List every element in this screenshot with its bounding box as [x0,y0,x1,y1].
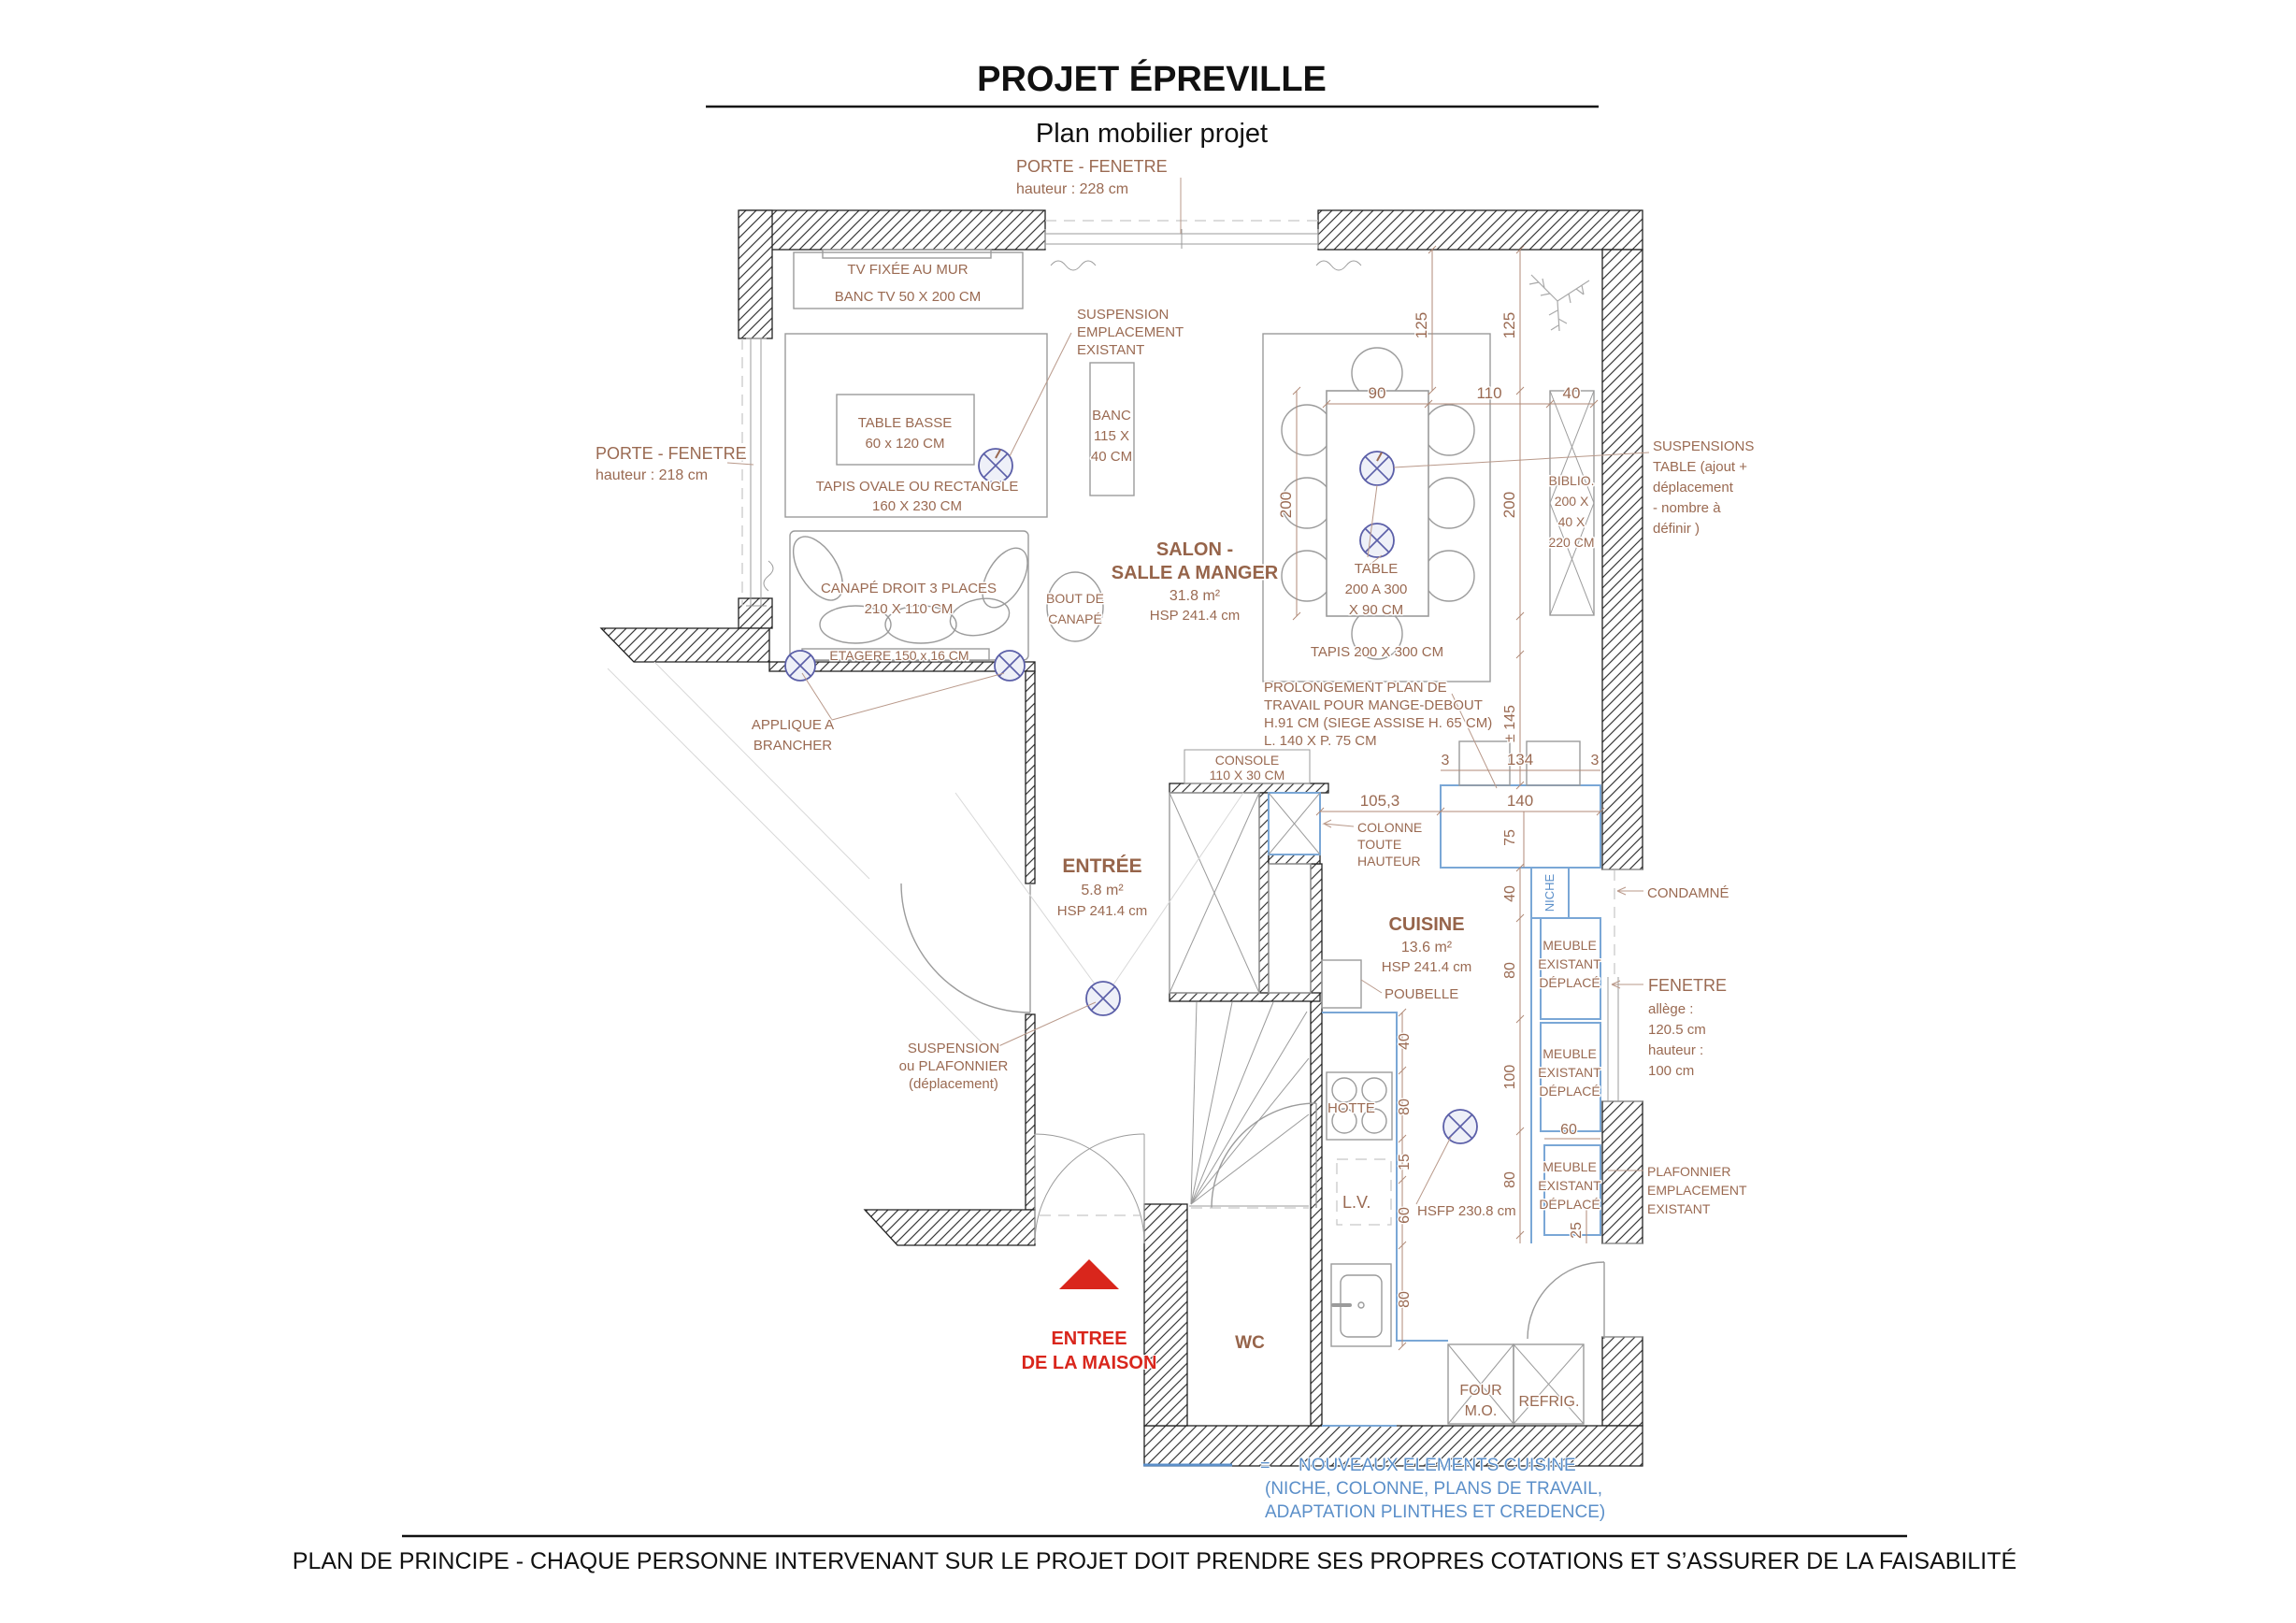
dim-90: 90 [1369,384,1386,402]
label-banc-1: BANC [1092,408,1131,424]
header: PROJET ÉPREVILLE Plan mobilier projet [706,58,1599,149]
label-hotte: HOTTE [1327,1100,1375,1116]
wall-top-right [1318,210,1643,250]
label-susp-salon-1: SUSPENSION [1077,307,1169,323]
label-meuble-1: MEUBLE EXISTANT DÉPLACÉ [1538,938,1601,990]
dim-60-l: 60 [1397,1207,1413,1224]
meuble-line: EXISTANT [1538,1065,1601,1080]
label-banc-2: 115 X [1094,428,1129,444]
label-tapis-salon-1: TAPIS OVALE OU RECTANGLE [816,479,1019,495]
label-hsfp: HSFP 230.8 cm [1417,1203,1516,1219]
trash-bin [1322,960,1361,1008]
label-bout-canape-2: CANAPÉ [1048,611,1102,626]
label-cuisine-1: CUISINE [1388,914,1464,935]
sink [1331,1264,1391,1346]
label-poubelle: POUBELLE [1385,986,1458,1002]
meuble-line: MEUBLE [1543,1159,1597,1174]
label-colonne-1: COLONNE [1357,820,1422,835]
meuble-line: MEUBLE [1543,1046,1597,1061]
label-applique-2: BRANCHER [753,738,832,754]
label-lv: L.V. [1342,1193,1370,1212]
label-susp-table-1: SUSPENSIONS [1653,438,1754,454]
dim-60-meuble: 60 [1560,1122,1577,1138]
label-condamne: CONDAMNÉ [1647,885,1729,901]
label-plafonnier-3: EXISTANT [1647,1201,1711,1216]
wall-right-lower [1602,1337,1643,1426]
dim-75: 75 [1502,829,1518,846]
wall-left-lower [739,598,772,628]
label-table-basse-1: TABLE BASSE [858,415,953,431]
entrance-mark: ENTREE DE LA MAISON [1022,1259,1157,1373]
suspension-table-symbol-1 [1360,452,1394,485]
plant-icon [1529,275,1589,331]
dim-140: 140 [1507,792,1533,810]
label-prolongement-4: L. 140 X P. 75 CM [1264,733,1377,749]
label-susp-salon-2: EMPLACEMENT [1077,324,1184,340]
closet [1170,793,1259,993]
meuble-line: DÉPLACÉ [1539,1084,1600,1099]
label-refrig: REFRIG. [1519,1394,1580,1410]
label-tapis-sam: TAPIS 200 X 300 CM [1311,644,1443,660]
removed-unit-dashed [1337,1159,1391,1225]
entrance-door-arc2 [1035,1134,1144,1243]
wall-entree-bottom [865,1210,1035,1245]
label-table-sam-2: 200 A 300 [1345,582,1408,597]
label-fenetre-3: 120.5 cm [1648,1022,1706,1038]
label-entree-1: ENTRÉE [1062,855,1141,877]
label-tv: TV FIXÉE AU MUR [847,262,968,278]
chair [1424,405,1474,455]
label-banc-tv: BANC TV 50 X 200 CM [835,289,981,305]
legend-eq: = [1260,1456,1270,1474]
label-fenetre-1: FENETRE [1648,976,1727,995]
label-banc-3: 40 CM [1091,449,1132,465]
dim-80-r2: 80 [1502,1171,1518,1188]
label-biblio-2: 200 X [1555,494,1589,509]
entrance-triangle-icon [1059,1259,1119,1289]
dim-80-l2: 80 [1397,1291,1413,1308]
dim-15-l: 15 [1397,1154,1413,1171]
wall-closet-right [1259,793,1269,1001]
suspension-table-symbol-2 [1360,524,1394,557]
wall-top-left [740,210,1045,250]
meuble-line: EXISTANT [1538,1178,1601,1193]
label-table-sam-3: X 90 CM [1349,602,1403,618]
applique-symbol-right [995,651,1025,681]
wall-salon-stub [601,628,769,662]
footer-text: PLAN DE PRINCIPE - CHAQUE PERSONNE INTER… [293,1547,2016,1574]
tv-screen [823,250,991,258]
plant-branch [1549,301,1567,331]
floor-plan-page: PROJET ÉPREVILLE Plan mobilier projet [0,0,2296,1623]
stair-tread [1191,1114,1309,1204]
fridge [1514,1344,1584,1424]
wall-right-mid [1602,1101,1643,1243]
dim-40-niche: 40 [1502,885,1518,902]
label-entree-maison-1: ENTREE [1051,1329,1126,1349]
legend-line-1: NOUVEAUX ELEMENTS CUISINE [1299,1456,1576,1475]
legend-line-3: ADAPTATION PLINTHES ET CREDENCE) [1265,1502,1605,1522]
label-fenetre-5: 100 cm [1648,1063,1694,1079]
label-pf-top-2: hauteur : 228 cm [1016,181,1128,197]
label-prolongement-3: H.91 CM (SIEGE ASSISE H. 65 CM) [1264,715,1492,731]
label-tapis-salon-2: 160 X 230 CM [872,498,962,514]
terrace-door-arc [1528,1262,1604,1339]
burner [1332,1078,1356,1102]
salon-door-arc [901,883,1030,1013]
side-table-circle [1047,572,1103,641]
label-prolongement-2: TRAVAIL POUR MANGE-DEBOUT [1264,697,1483,713]
cutaway-line-2 [654,662,869,879]
label-niche: NICHE [1543,873,1557,912]
kitchen-light-symbol [1443,1110,1477,1143]
leader-colonne [1324,820,1354,827]
dim-80-r1: 80 [1502,962,1518,979]
dim-125-right: 125 [1500,312,1518,338]
chair [1282,405,1332,455]
label-four-2: M.O. [1465,1403,1498,1419]
curtain-squiggle-left [1051,261,1096,270]
lower-cabinet [1269,864,1311,993]
dim-1053: 105,3 [1360,792,1400,810]
label-cuisine-hsp: HSP 241.4 cm [1382,959,1471,975]
plant-branch [1529,275,1557,301]
label-susp-table-5: définir ) [1653,521,1700,537]
dim-40-top: 40 [1563,384,1581,402]
label-pf-top-1: PORTE - FENETRE [1016,157,1168,176]
label-plafonnier-1: PLAFONNIER [1647,1164,1730,1179]
stair-tread [1191,1058,1309,1204]
sofa-cushion-5 [973,540,1037,615]
label-entree-hsp: HSP 241.4 cm [1057,903,1147,919]
plant-branch [1557,280,1589,303]
footer: PLAN DE PRINCIPE - CHAQUE PERSONNE INTER… [293,1536,2016,1574]
page-subtitle: Plan mobilier projet [1036,119,1268,149]
applique-symbol-left [785,651,815,681]
label-susp-entree-3: (déplacement) [909,1076,998,1092]
wall-entree-left-upper [1026,671,1035,883]
suspension-salon-symbol [979,449,1012,482]
label-fenetre-4: hauteur : [1648,1042,1703,1058]
label-four-1: FOUR [1459,1383,1501,1399]
label-susp-salon-3: EXISTANT [1077,342,1144,358]
label-etagere: ETAGERE 150 x 16 CM [829,648,969,663]
page-title: PROJET ÉPREVILLE [977,58,1327,99]
label-prolongement-1: PROLONGEMENT PLAN DE [1264,680,1447,696]
dim-100-r: 100 [1502,1065,1518,1090]
label-colonne-3: HAUTEUR [1357,854,1421,869]
dim-200-right: 200 [1500,492,1518,518]
label-wc: WC [1235,1333,1265,1353]
leader-suspension-entree [997,1002,1096,1047]
leader-poubelle [1361,980,1382,993]
wall-left-upper [739,210,772,338]
meuble-line: DÉPLACÉ [1539,1197,1600,1212]
stair-tread [1191,1002,1197,1204]
label-pf-left-2: hauteur : 218 cm [596,467,708,483]
dim-3a: 3 [1442,753,1450,768]
dim-110: 110 [1476,384,1501,402]
full-height-column [1269,793,1320,855]
label-salon-hsp: HSP 241.4 cm [1150,608,1240,624]
label-console-1: CONSOLE [1215,753,1279,768]
wall-closet-top [1170,783,1328,793]
dim-200-left: 200 [1277,492,1295,518]
dim-80-l1: 80 [1397,1099,1413,1115]
label-canape-1: CANAPÉ DROIT 3 PLACES [821,581,997,596]
dim-145: ± 145 [1502,705,1518,742]
leader-applique [802,673,1004,720]
label-canape-2: 210 X 110 CM [865,601,954,617]
stair-tread [1191,1012,1307,1204]
dim-3b: 3 [1591,753,1600,768]
doors [901,883,1604,1339]
leader-pf-left [727,463,753,465]
stairs [1189,1002,1309,1206]
meuble-line: DÉPLACÉ [1539,975,1600,990]
faucet-base [1358,1302,1364,1308]
chair [1424,478,1474,528]
dim-40-l: 40 [1397,1033,1413,1050]
label-salon-1: SALON - [1156,539,1233,560]
wall-colonne-bottom [1269,855,1320,864]
wall-closet-bottom [1170,993,1320,1001]
chair [1424,551,1474,601]
dim-125-left: 125 [1413,312,1430,338]
wall-entree-left-lower [1026,1014,1035,1210]
stair-tread [1191,1002,1232,1204]
label-salon-2: SALLE A MANGER [1112,563,1279,583]
label-colonne-2: TOUTE [1357,837,1401,852]
label-applique-1: APPLIQUE A [752,717,834,733]
dim-25: 25 [1569,1222,1585,1239]
label-table-sam-1: TABLE [1355,561,1398,577]
label-susp-table-2: TABLE (ajout + [1653,459,1747,475]
dim-134: 134 [1507,751,1533,768]
stair-tread [1191,1002,1273,1204]
ceiling-line-2 [1108,793,1243,993]
label-susp-entree-1: SUSPENSION [908,1041,999,1056]
meuble-line: EXISTANT [1538,956,1601,971]
burner [1362,1078,1386,1102]
label-bout-canape-1: BOUT DE [1046,591,1104,606]
label-entree-maison-2: DE LA MAISON [1022,1353,1157,1373]
wall-wc-left [1144,1204,1187,1426]
label-fenetre-2: allège : [1648,1001,1693,1017]
entrance-door-arc1 [1035,1134,1144,1243]
leader-hsfp [1416,1137,1451,1204]
meuble-line: MEUBLE [1543,938,1597,953]
floor-plan-canvas: PROJET ÉPREVILLE Plan mobilier projet [0,0,2296,1623]
label-susp-entree-2: ou PLAFONNIER [899,1058,1009,1074]
label-meuble-3: MEUBLE EXISTANT DÉPLACÉ [1538,1159,1601,1212]
label-plafonnier-2: EMPLACEMENT [1647,1183,1747,1198]
chair [1282,551,1332,601]
label-console-2: 110 X 30 CM [1210,768,1285,783]
label-susp-table-4: - nombre à [1653,500,1721,516]
label-meuble-2: MEUBLE EXISTANT DÉPLACÉ [1538,1046,1601,1099]
wall-right-upper [1602,250,1643,869]
left-window-squiggle [764,561,773,591]
label-table-basse-2: 60 x 120 CM [865,436,944,452]
label-biblio-1: BIBLIO. [1548,473,1594,488]
label-cuisine-area: 13.6 m² [1401,940,1453,955]
sofa-cushion-4 [947,594,1013,640]
label-biblio-4: 220 CM [1548,535,1594,550]
stool-2 [1527,741,1580,785]
leader-fenetre [1612,981,1643,988]
label-entree-area: 5.8 m² [1081,883,1124,898]
entree-light-symbol [1086,982,1120,1015]
wc-door-arc [1212,1103,1316,1208]
legend: = NOUVEAUX ELEMENTS CUISINE (NICHE, COLO… [1143,1456,1605,1522]
legend-line-2: (NICHE, COLONNE, PLANS DE TRAVAIL, [1265,1479,1602,1499]
label-pf-left-1: PORTE - FENETRE [596,444,747,463]
leader-suspension-salon [1010,333,1071,456]
curtain-squiggle-right [1316,261,1361,270]
label-biblio-3: 40 X [1558,514,1586,529]
leader-condamne [1617,887,1643,895]
label-salon-area: 31.8 m² [1170,588,1221,604]
label-susp-table-3: déplacement [1653,480,1734,496]
